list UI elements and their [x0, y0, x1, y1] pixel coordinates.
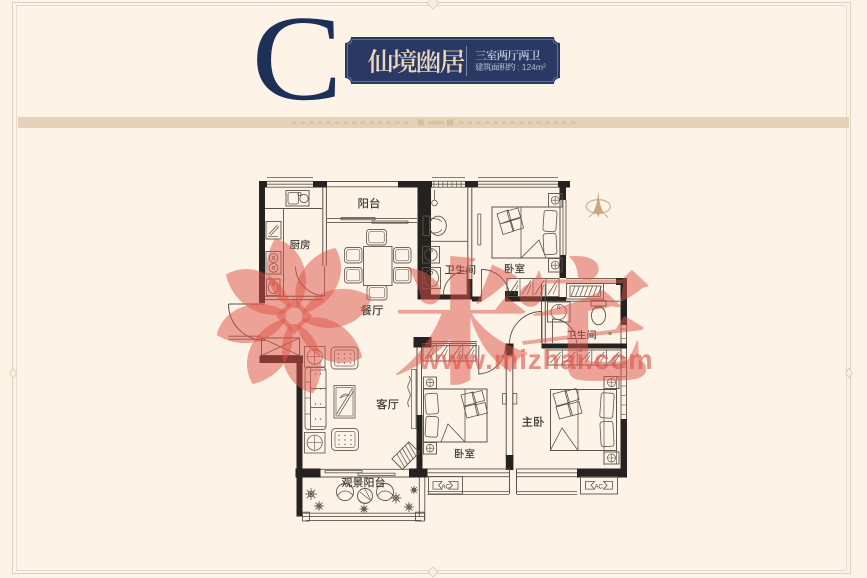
svg-text:AC: AC	[442, 485, 451, 491]
svg-text:C: C	[252, 0, 343, 126]
svg-text:: 124m²: : 124m²	[517, 62, 546, 72]
svg-text:www.mizhai.com: www.mizhai.com	[418, 344, 654, 375]
svg-text:AC: AC	[595, 485, 604, 491]
